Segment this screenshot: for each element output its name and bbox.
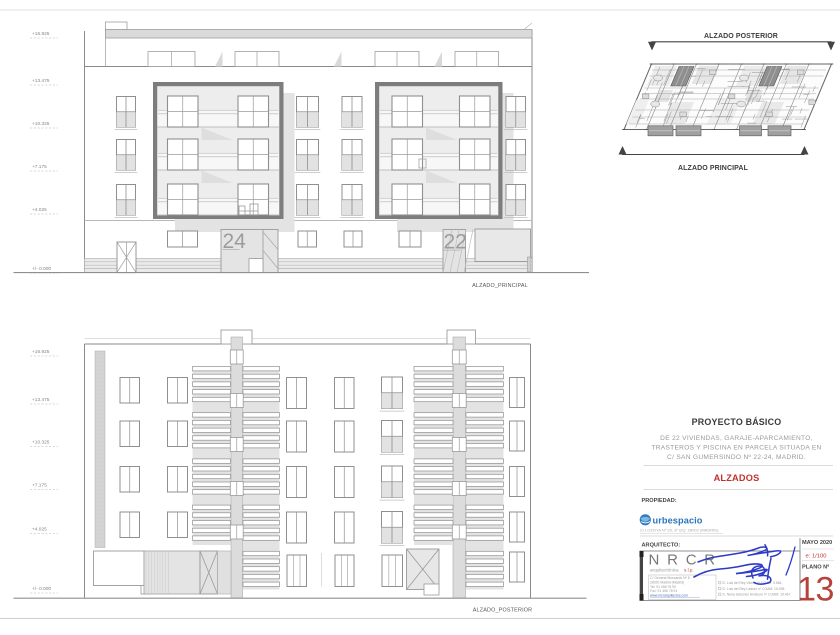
svg-text:+7.175: +7.175 bbox=[32, 483, 47, 489]
svg-text:+10.325: +10.325 bbox=[32, 121, 50, 127]
svg-text:D. Luis del Rey Vikeur nº COAM: D. Luis del Rey Vikeur nº COAM: 9.564 bbox=[723, 581, 782, 585]
svg-text:ALZADOS: ALZADOS bbox=[714, 473, 760, 483]
svg-text:C/ SAN GUMERSINDO Nº 22-24, MA: C/ SAN GUMERSINDO Nº 22-24, MADRID. bbox=[667, 454, 806, 461]
svg-text:ARQUITECTO:: ARQUITECTO: bbox=[642, 543, 681, 549]
svg-text:C/ LOZOYA Nº 25, 3º IZQ. 2800: C/ LOZOYA Nº 25, 3º IZQ. 28002 (MADRID) bbox=[640, 528, 719, 533]
svg-text:PROYECTO BÁSICO: PROYECTO BÁSICO bbox=[692, 417, 782, 427]
svg-text:urbespacio: urbespacio bbox=[653, 516, 703, 526]
svg-text:+16.925: +16.925 bbox=[32, 349, 50, 355]
svg-text:s.l.p.: s.l.p. bbox=[684, 568, 694, 573]
svg-text:ALZADO_PRINCIPAL: ALZADO_PRINCIPAL bbox=[472, 283, 528, 289]
svg-text:+/- 0.000: +/- 0.000 bbox=[32, 266, 51, 272]
svg-text:D. Nuria Sánchez Arrabure nº C: D. Nuria Sánchez Arrabure nº COAM: 19.46… bbox=[723, 593, 791, 597]
svg-text:e: 1/100: e: 1/100 bbox=[806, 553, 827, 559]
svg-text:D. Luis del Rey Ladrón nº COAM: D. Luis del Rey Ladrón nº COAM: 15.098 bbox=[723, 587, 785, 591]
svg-text:+4.025: +4.025 bbox=[32, 527, 47, 533]
svg-text:MAYO 2020: MAYO 2020 bbox=[802, 540, 832, 546]
svg-text:+13.475: +13.475 bbox=[32, 78, 50, 84]
svg-text:TRASTEROS Y PISCINA EN PARCELA: TRASTEROS Y PISCINA EN PARCELA SITUADA E… bbox=[651, 445, 821, 452]
svg-text:ALZADO PRINCIPAL: ALZADO PRINCIPAL bbox=[678, 165, 749, 172]
svg-text:+/- 0.000: +/- 0.000 bbox=[32, 586, 51, 592]
svg-text:N R C R: N R C R bbox=[649, 552, 717, 569]
svg-text:www.nrcrarquitectos.com: www.nrcrarquitectos.com bbox=[650, 593, 688, 597]
svg-text:PROPIEDAD:: PROPIEDAD: bbox=[642, 498, 677, 504]
svg-text:+7.175: +7.175 bbox=[32, 164, 47, 170]
svg-text:+4.025: +4.025 bbox=[32, 207, 47, 213]
svg-text:+10.325: +10.325 bbox=[32, 440, 50, 446]
svg-text:+13.475: +13.475 bbox=[32, 397, 50, 403]
svg-text:13: 13 bbox=[797, 570, 834, 608]
svg-text:ALZADO_POSTERIOR: ALZADO_POSTERIOR bbox=[473, 608, 533, 614]
svg-text:DE 22 VIVIENDAS, GARAJE-APARCA: DE 22 VIVIENDAS, GARAJE-APARCAMIENTO, bbox=[660, 435, 813, 442]
svg-text:ALZADO POSTERIOR: ALZADO POSTERIOR bbox=[704, 33, 778, 40]
svg-text:arquitectónica: arquitectónica bbox=[650, 568, 679, 573]
svg-text:+16.925: +16.925 bbox=[32, 31, 50, 37]
